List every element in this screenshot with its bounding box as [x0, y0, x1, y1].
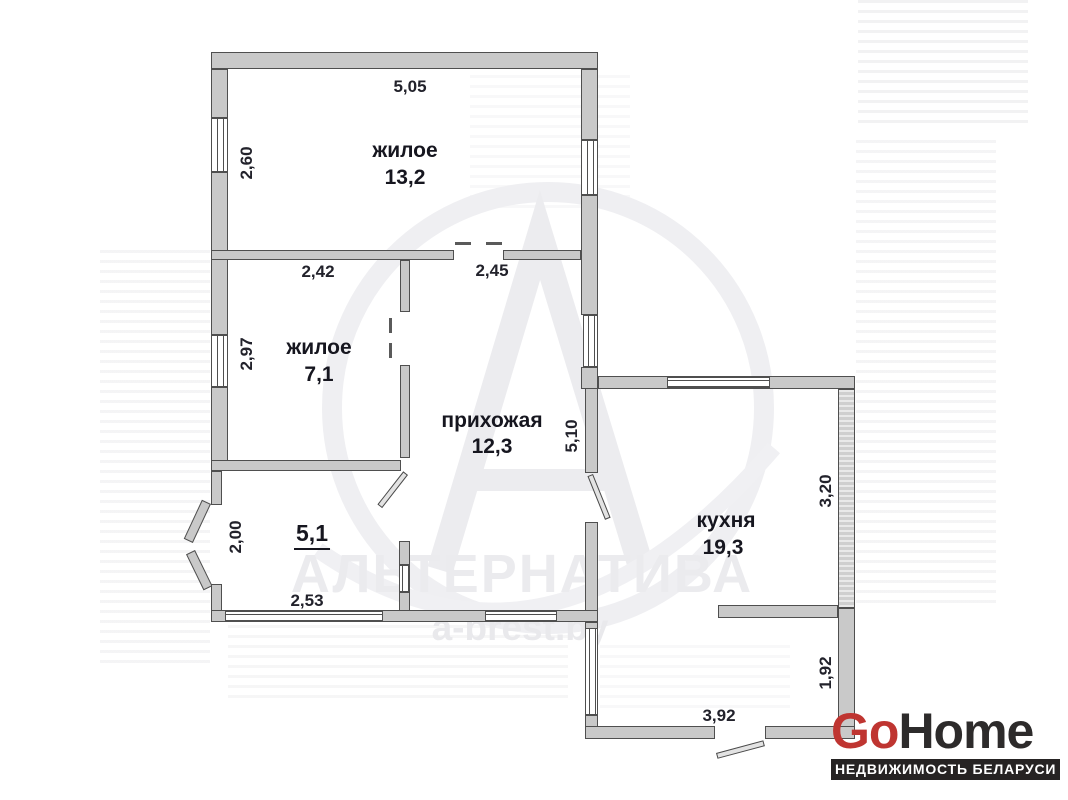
dim-kitchen-depth: 3,20	[816, 474, 836, 507]
room-area-kitchen: 19,3	[703, 536, 744, 560]
wall	[585, 388, 598, 473]
dim-living-small-width: 2,42	[301, 262, 334, 282]
dim-hallway-width: 2,45	[475, 261, 508, 281]
dim-hallway-depth: 5,10	[562, 419, 582, 452]
window	[585, 628, 598, 715]
dim-living-large-width: 5,05	[393, 77, 426, 97]
wall	[211, 250, 454, 260]
wall	[211, 69, 228, 118]
room-label-hallway: прихожая	[441, 409, 542, 433]
room-area-living-large: 13,2	[385, 166, 426, 190]
wall	[718, 605, 838, 618]
dim-living-large-depth: 2,60	[237, 146, 257, 179]
wall	[581, 367, 598, 389]
window	[667, 377, 770, 388]
gohome-home: Home	[898, 703, 1033, 759]
gohome-logo: GoHome НЕДВИЖИМОСТЬ БЕЛАРУСИ	[831, 706, 1060, 780]
wall	[211, 471, 222, 505]
wall	[211, 460, 401, 471]
wall	[400, 260, 410, 312]
wall	[585, 522, 598, 611]
wall	[581, 195, 598, 315]
gohome-go: Go	[831, 703, 898, 759]
wall	[585, 726, 715, 739]
interior-window	[399, 565, 410, 592]
gohome-tagline: НЕДВИЖИМОСТЬ БЕЛАРУСИ	[831, 759, 1060, 780]
window	[211, 335, 228, 387]
wall	[399, 592, 410, 611]
texture-stripes	[100, 250, 210, 670]
door-opening-dash	[486, 242, 502, 245]
door-opening-dash	[389, 343, 392, 358]
window	[583, 315, 598, 367]
window	[225, 611, 383, 622]
wall	[503, 250, 581, 260]
window	[581, 140, 598, 195]
wall	[400, 365, 410, 458]
dim-annex-width: 3,92	[702, 706, 735, 726]
room-area-hallway: 12,3	[472, 435, 513, 459]
room-area-room5: 5,1	[294, 520, 330, 550]
wall	[211, 387, 228, 471]
room-area-living-small: 7,1	[304, 363, 333, 387]
window	[485, 611, 557, 622]
room-label-kitchen: кухня	[696, 509, 755, 533]
room-label-living-large: жилое	[372, 139, 437, 163]
dim-living-small-depth: 2,97	[237, 337, 257, 370]
wall	[211, 584, 222, 611]
door-opening-dash	[389, 318, 392, 333]
wall	[838, 389, 855, 608]
dim-annex-depth: 1,92	[816, 656, 836, 689]
watermark-brand: АЛЬТЕРНАТИВА	[291, 543, 753, 605]
gohome-wordmark: GoHome	[831, 706, 1060, 756]
wall	[581, 69, 598, 140]
room-label-living-small: жилое	[286, 336, 351, 360]
floor-plan: АЛЬТЕРНАТИВА a-brest.by	[0, 0, 1068, 800]
texture-stripes	[856, 140, 996, 610]
dim-room5-width: 2,53	[290, 591, 323, 611]
door-leaf	[716, 740, 765, 758]
wall	[211, 52, 598, 69]
window	[211, 118, 228, 172]
texture-stripes	[858, 0, 1028, 125]
dim-room5-depth: 2,00	[226, 520, 246, 553]
wall	[399, 541, 410, 565]
door-opening-dash	[455, 242, 471, 245]
